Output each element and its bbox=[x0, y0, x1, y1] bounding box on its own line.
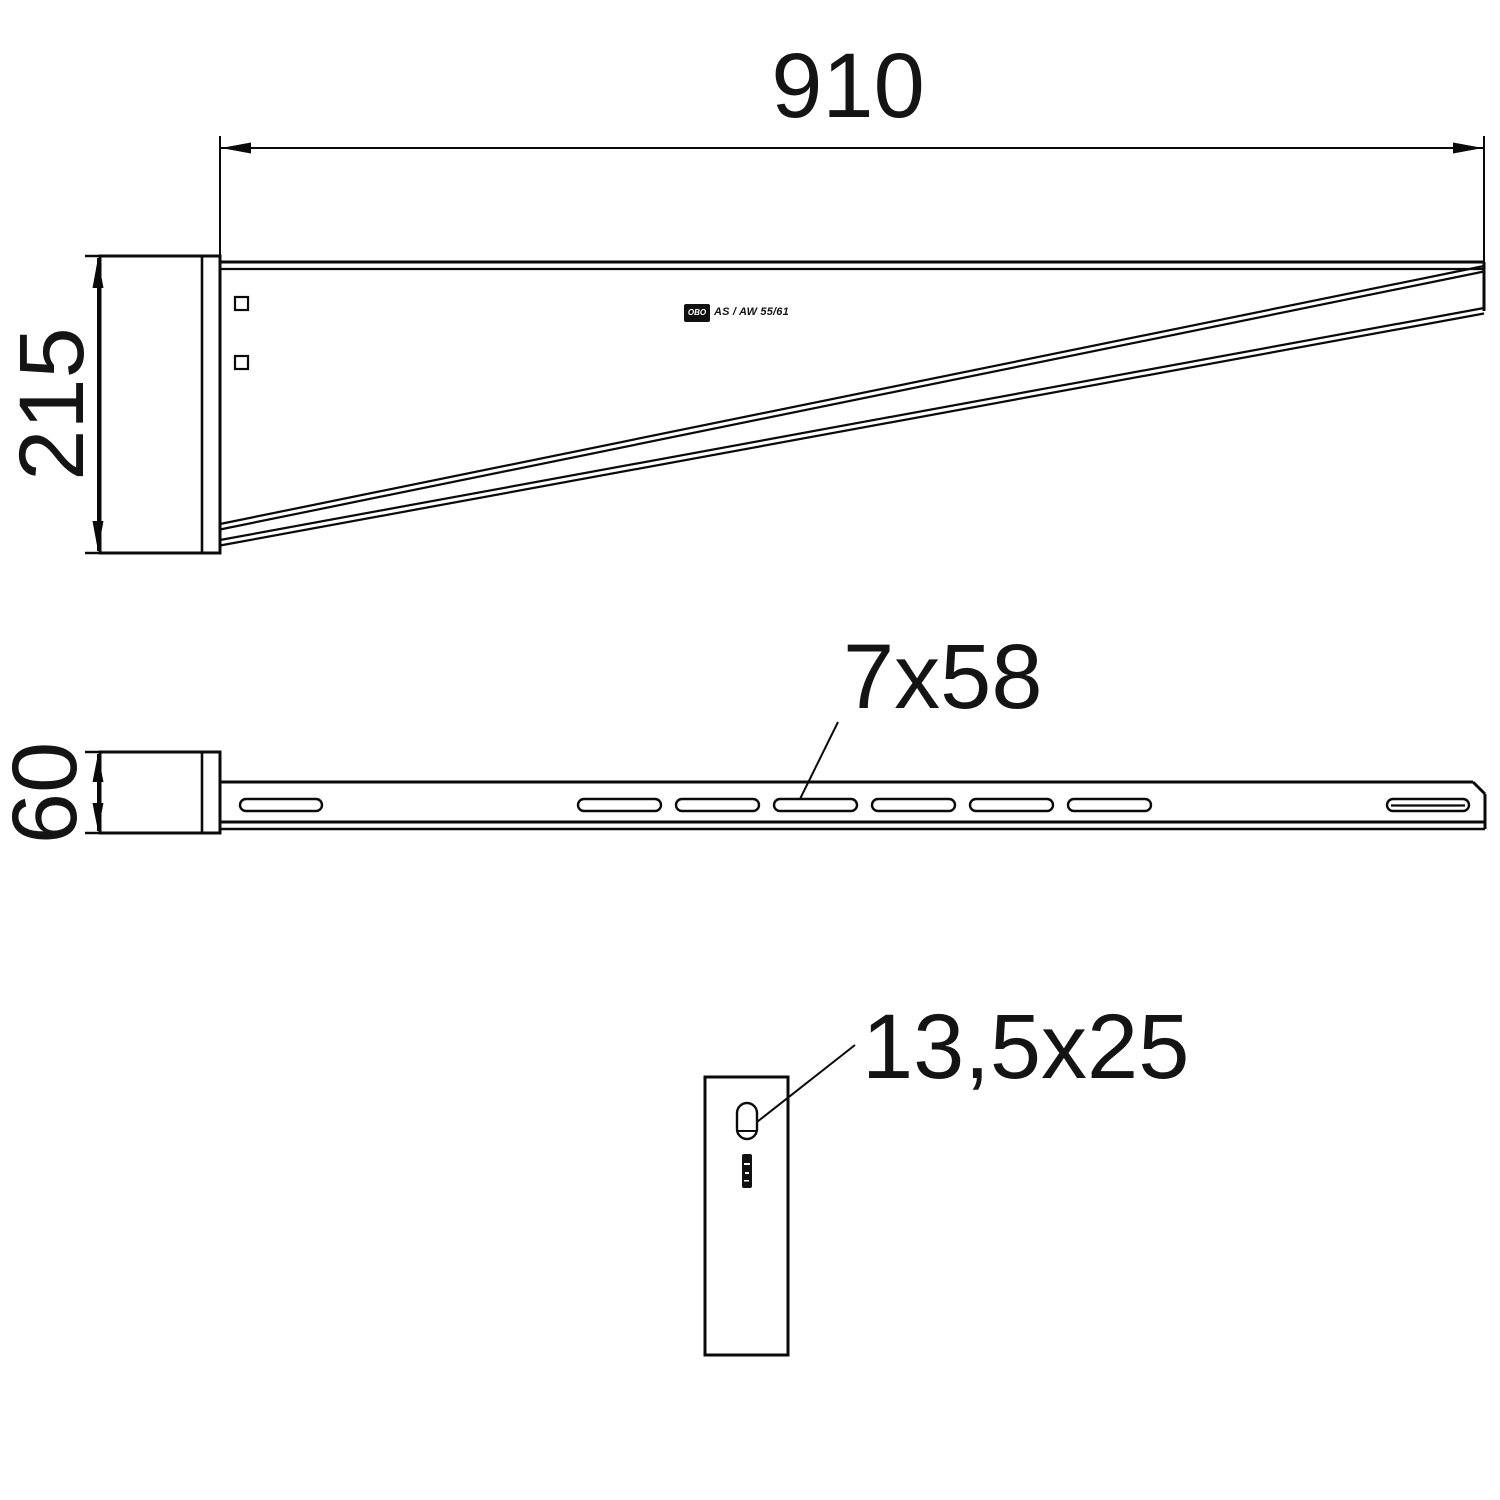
end-slot-13-5x25 bbox=[737, 1103, 757, 1139]
arrowhead-right bbox=[1453, 143, 1483, 154]
square-hole-lower bbox=[235, 356, 248, 369]
leader-7x58 bbox=[800, 722, 838, 799]
side-view-linework bbox=[85, 136, 1484, 553]
square-hole-upper bbox=[235, 297, 248, 310]
arm-slot-2 bbox=[578, 799, 661, 811]
vertical-stamp-marking bbox=[742, 1154, 752, 1188]
obo-logo: OBO bbox=[684, 304, 710, 322]
dim-overall-length: 910 bbox=[698, 40, 998, 132]
end-view-linework bbox=[705, 1045, 855, 1355]
arm-slot-6 bbox=[970, 799, 1053, 811]
drawing-linework bbox=[0, 0, 1500, 1500]
end-view-outline bbox=[705, 1077, 788, 1355]
leader-13-5x25 bbox=[757, 1045, 855, 1122]
brace-lower-line2 bbox=[220, 314, 1484, 546]
arm-slot-3 bbox=[676, 799, 759, 811]
arm-slot-7 bbox=[1068, 799, 1151, 811]
label-arm-slot-size: 7x58 bbox=[843, 631, 1043, 723]
plan-view-linework bbox=[85, 722, 1485, 833]
dim-arm-width: 60 bbox=[0, 643, 91, 943]
brace-lower-line1 bbox=[220, 308, 1484, 540]
brace-upper-line1 bbox=[220, 266, 1484, 524]
arm-slot-4 bbox=[774, 799, 857, 811]
brace-upper-line2 bbox=[220, 272, 1484, 530]
dimension-910 bbox=[221, 143, 1483, 154]
technical-drawing-canvas: 910 215 60 7x58 13,5x25 OBO AS / AW 55/6… bbox=[0, 0, 1500, 1500]
product-stamp: AS / AW 55/61 bbox=[714, 306, 789, 318]
arrowhead-left bbox=[221, 143, 251, 154]
arm-plan-chamfer bbox=[1473, 782, 1485, 794]
arm-slot-5 bbox=[872, 799, 955, 811]
arm-slot-1 bbox=[240, 799, 322, 811]
dim-height: 215 bbox=[6, 254, 98, 554]
label-end-slot-size: 13,5x25 bbox=[862, 1001, 1189, 1093]
